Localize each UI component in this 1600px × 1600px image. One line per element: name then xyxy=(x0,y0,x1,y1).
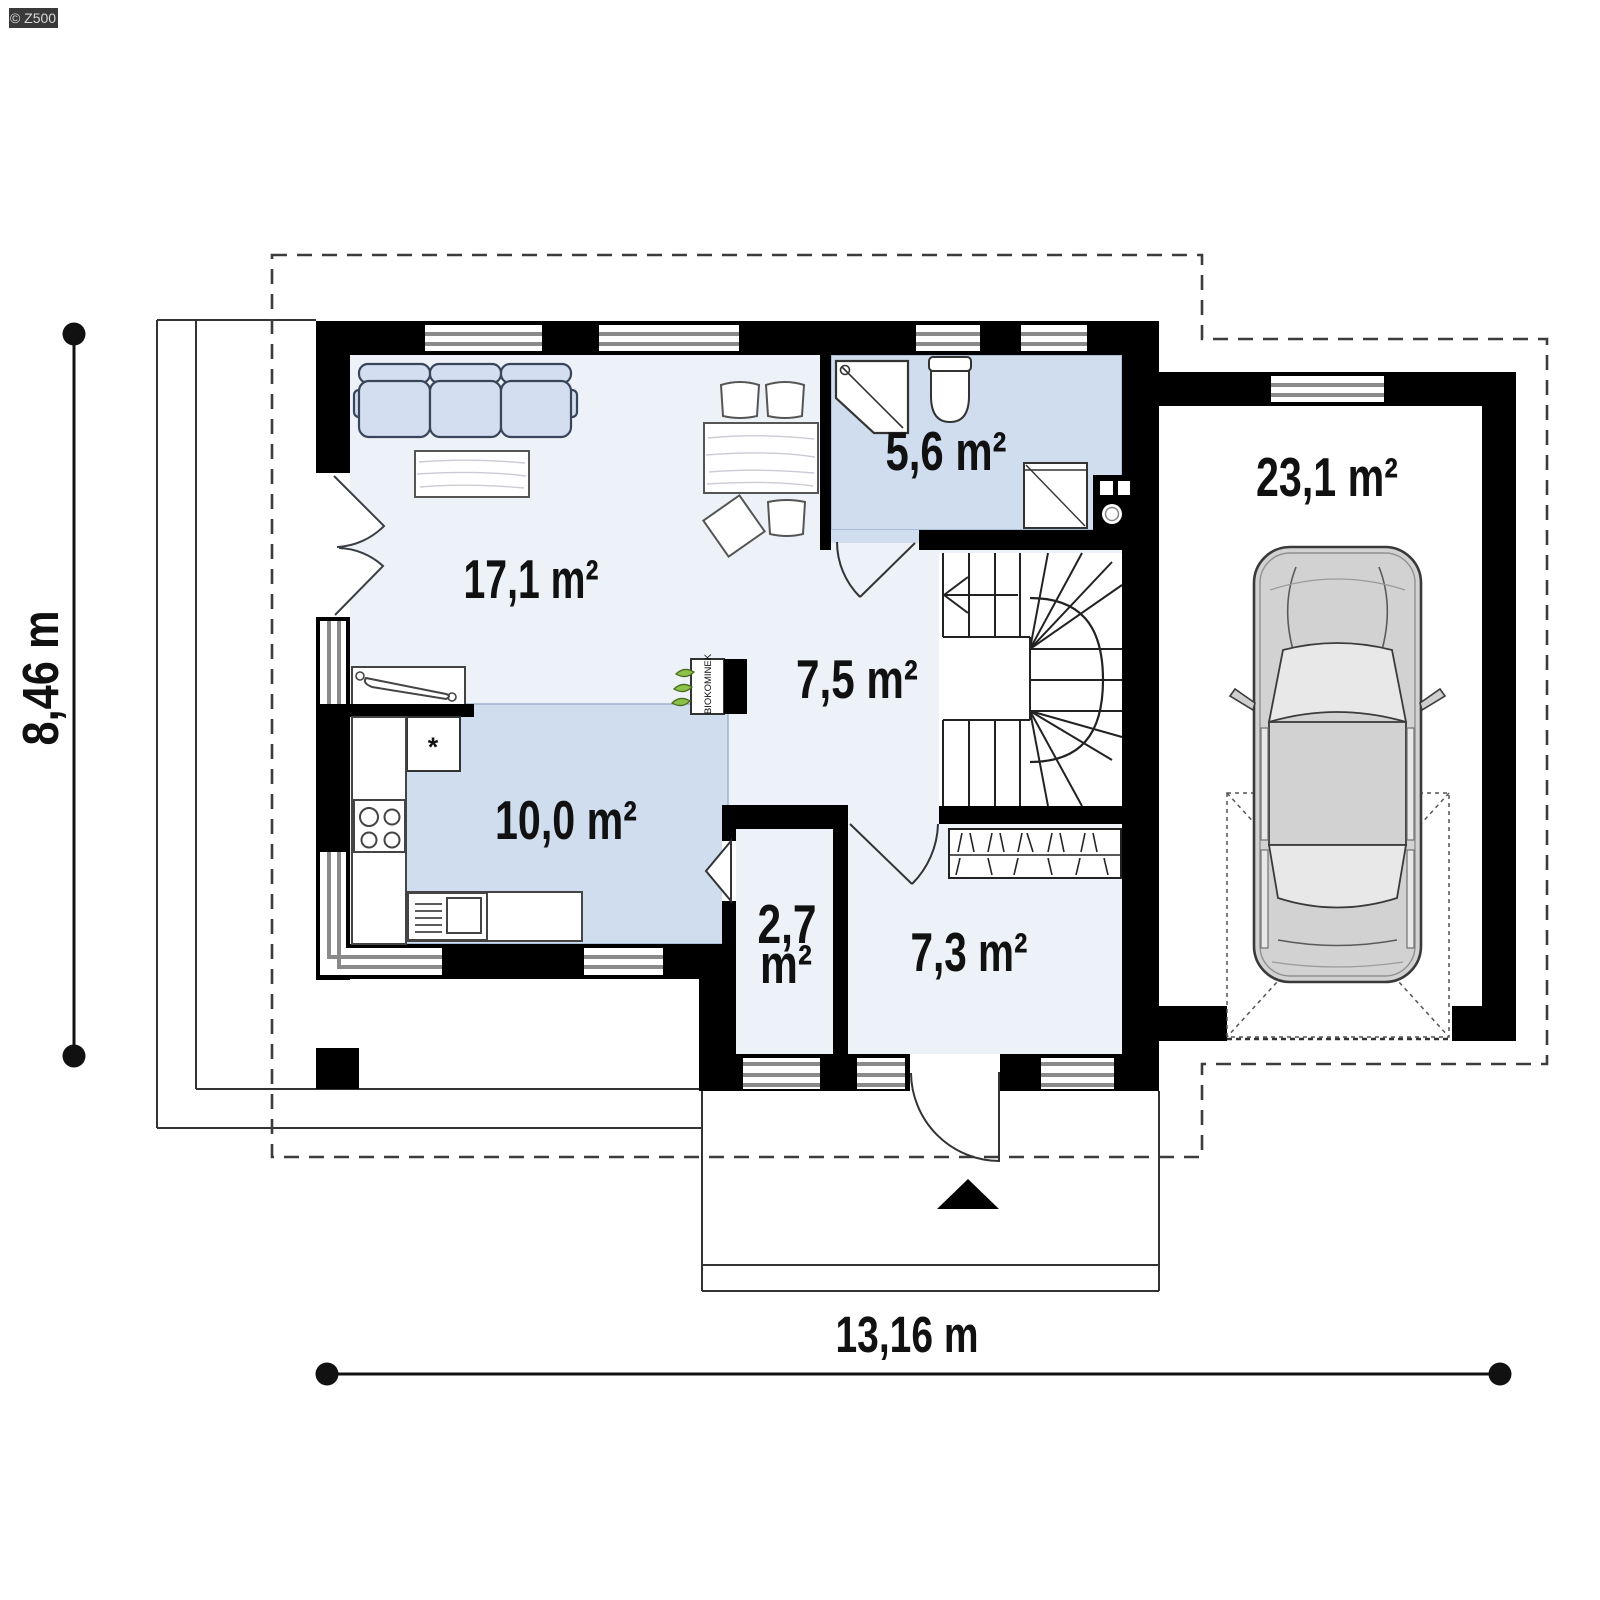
svg-text:*: * xyxy=(428,732,439,762)
svg-text:23,1 m²: 23,1 m² xyxy=(1256,446,1398,508)
svg-text:5,6 m²: 5,6 m² xyxy=(886,420,1007,482)
svg-text:7,5 m²: 7,5 m² xyxy=(796,648,918,710)
svg-text:© Z500: © Z500 xyxy=(10,10,56,26)
svg-text:7,3 m²: 7,3 m² xyxy=(911,921,1028,983)
svg-text:8,46 m: 8,46 m xyxy=(12,611,69,746)
svg-text:10,0 m²: 10,0 m² xyxy=(495,789,637,851)
svg-text:13,16 m: 13,16 m xyxy=(836,1306,979,1363)
svg-text:m²: m² xyxy=(760,933,812,995)
svg-text:17,1 m²: 17,1 m² xyxy=(464,548,599,610)
svg-text:BIOKOMINEK: BIOKOMINEK xyxy=(703,653,714,714)
